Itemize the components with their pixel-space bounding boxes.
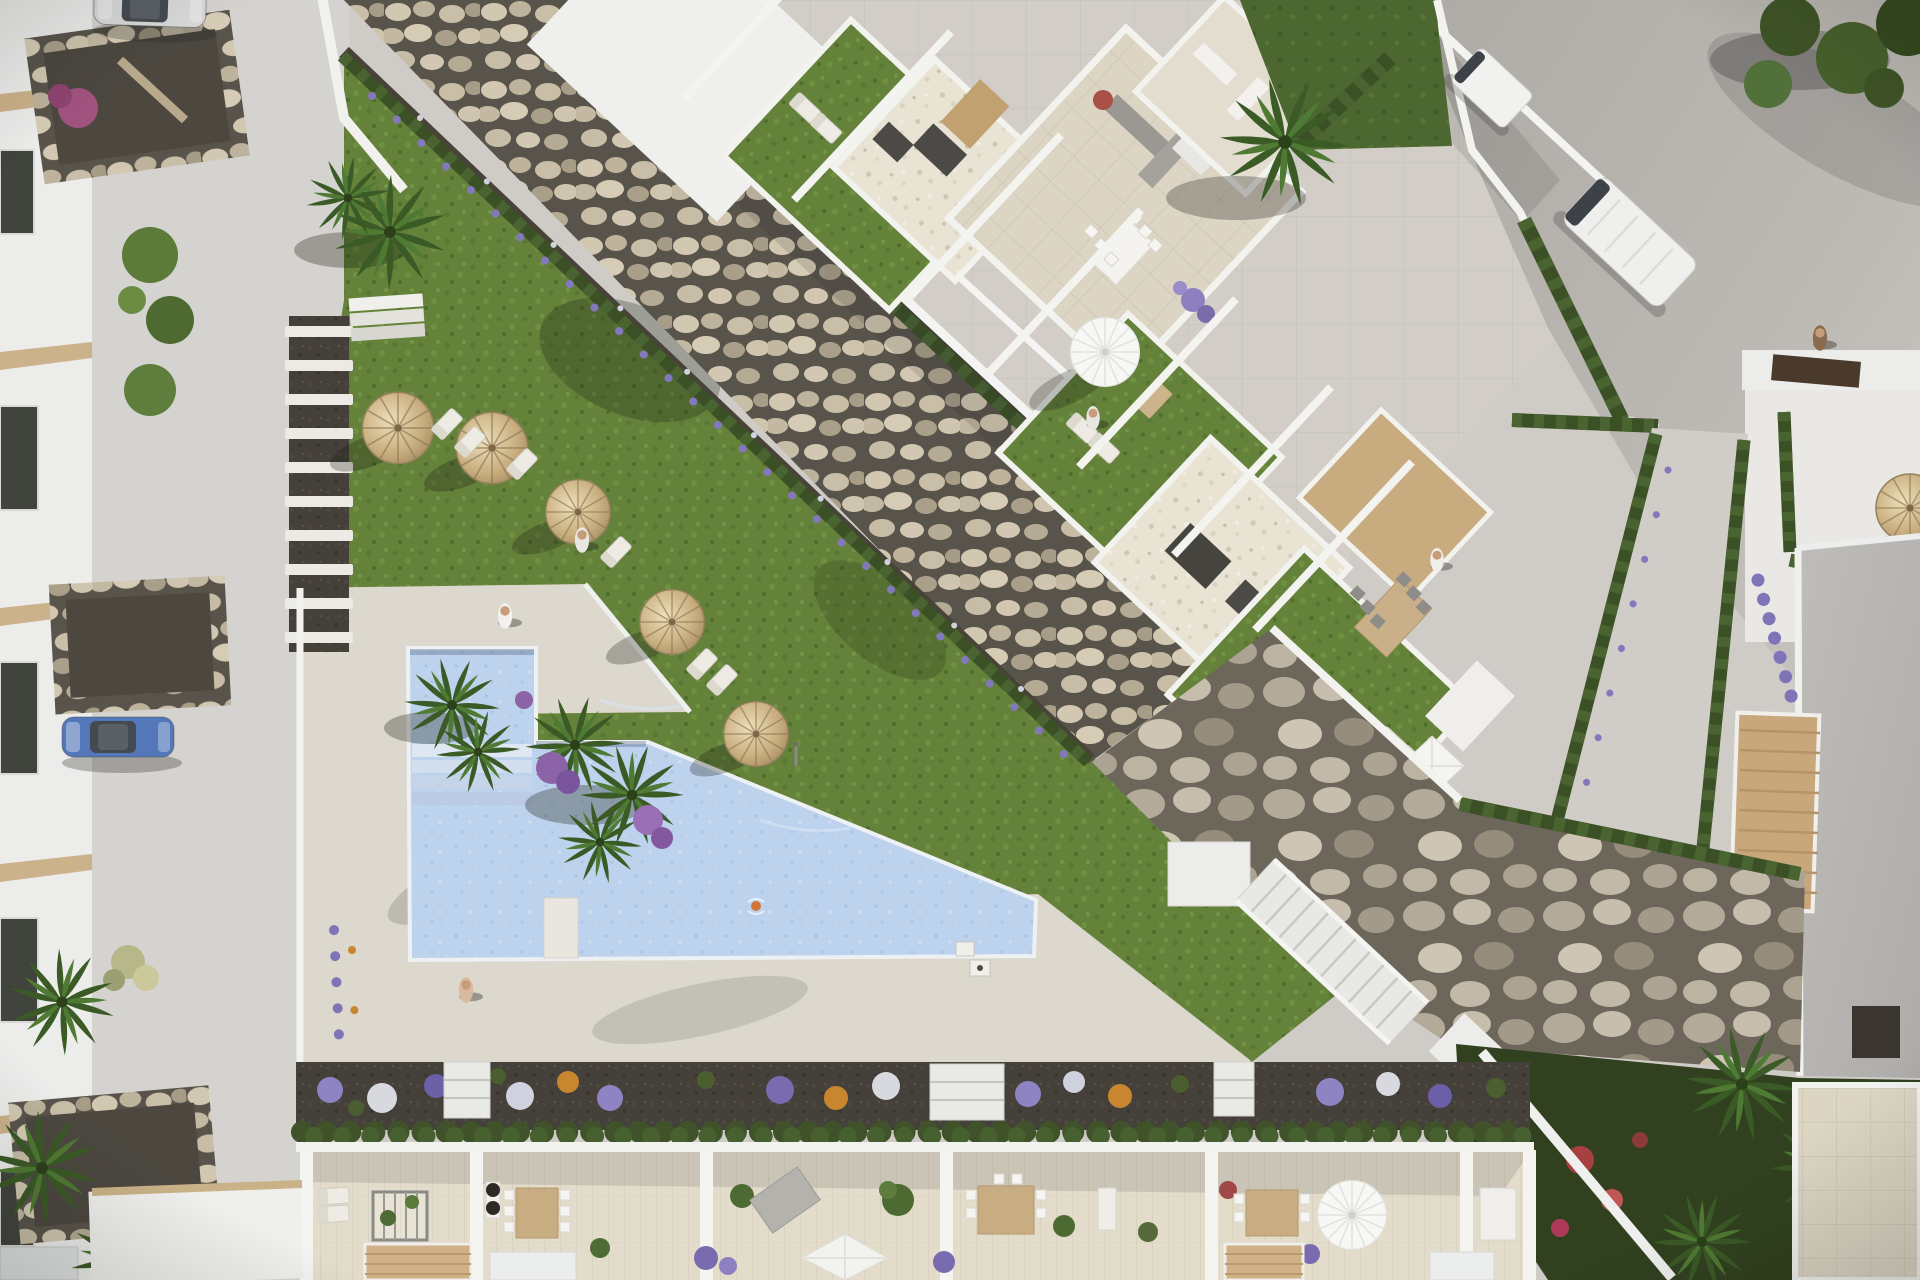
aerial-render-figure: Aerial top-down 3D render of a Mediterra… <box>0 0 1920 1280</box>
aerial-render: Aerial top-down 3D render of a Mediterra… <box>0 0 1920 1280</box>
vignette <box>0 0 1920 1280</box>
